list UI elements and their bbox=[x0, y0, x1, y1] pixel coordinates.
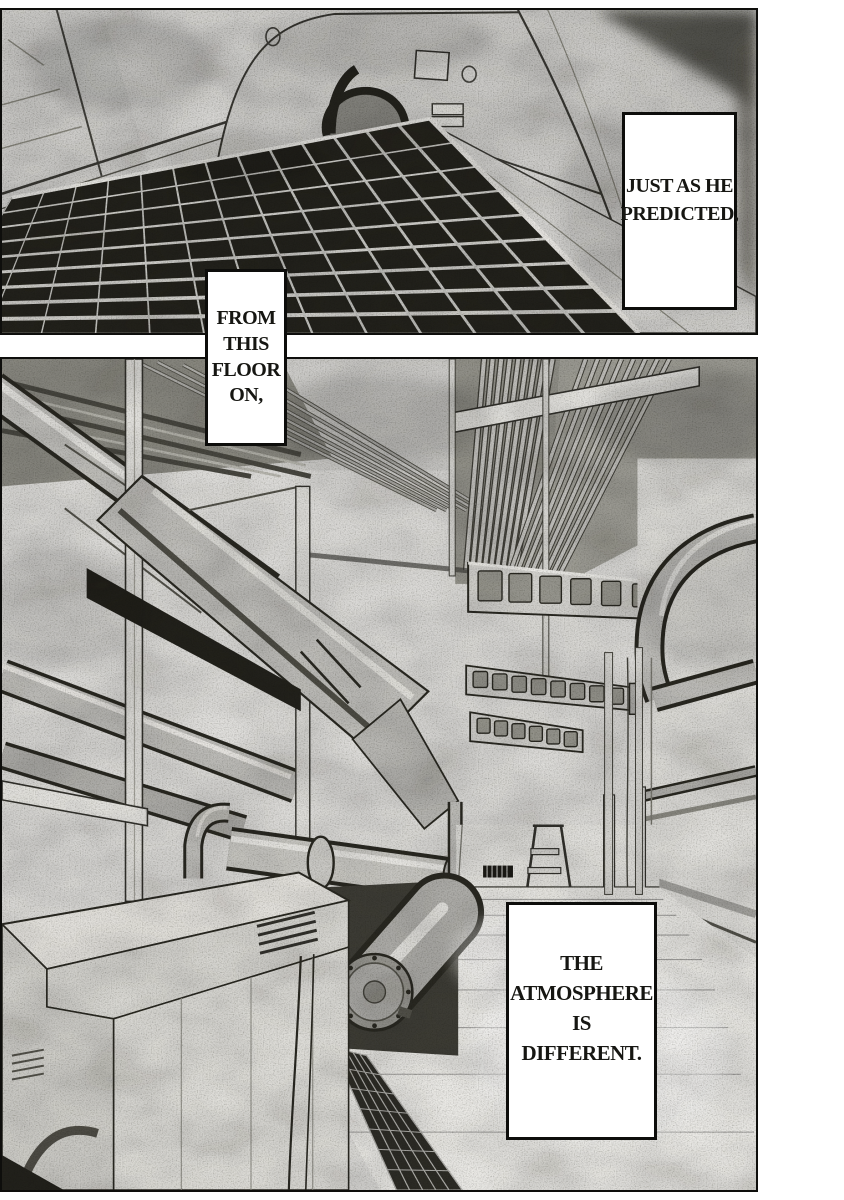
caption-just-as-he-predicted: JUST AS HE PREDICTED, bbox=[622, 112, 737, 310]
caption-line: FROM bbox=[216, 306, 275, 332]
manga-page: { "captions": { "predicted": { "lines": … bbox=[0, 0, 844, 1200]
caption-line: THIS bbox=[223, 332, 269, 358]
caption-line: ATMOSPHERE bbox=[510, 979, 653, 1009]
caption-the-atmosphere-is-different: THE ATMOSPHERE IS DIFFERENT. bbox=[506, 902, 657, 1140]
caption-from-this-floor-on: FROM THIS FLOOR ON, bbox=[205, 269, 287, 446]
caption-line: PREDICTED, bbox=[621, 201, 739, 229]
caption-line: DIFFERENT. bbox=[521, 1039, 641, 1069]
caption-line: FLOOR bbox=[212, 358, 281, 384]
caption-line: IS bbox=[572, 1009, 591, 1039]
caption-line: ON, bbox=[229, 383, 263, 409]
caption-line: JUST AS HE bbox=[626, 173, 733, 201]
caption-line: THE bbox=[560, 949, 603, 979]
